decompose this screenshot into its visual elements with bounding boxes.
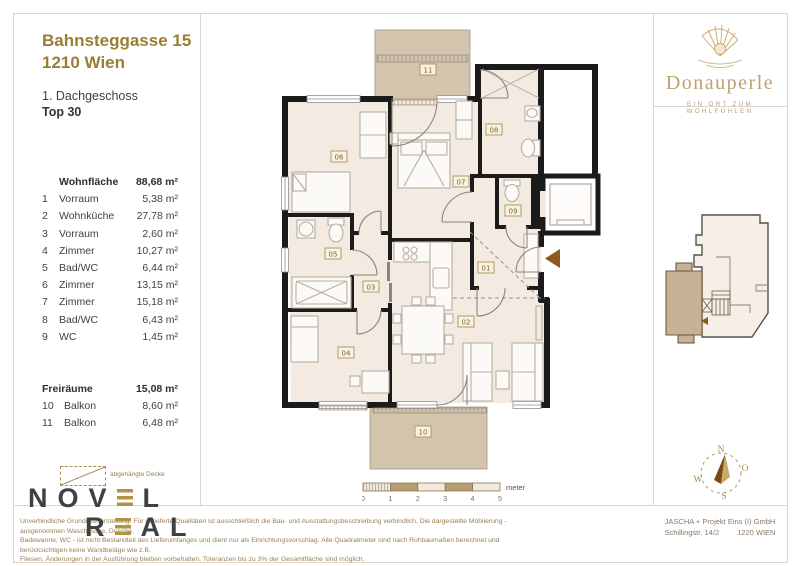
divider-left-column — [200, 13, 201, 505]
address-line2: 1210 Wien — [42, 52, 191, 74]
table-row: 9WC1,45 m² — [42, 331, 178, 348]
table-row: 10Balkon8,60 m² — [42, 400, 178, 417]
svg-text:3: 3 — [443, 496, 447, 503]
page-title: Bahnsteggasse 15 1210 Wien — [42, 30, 191, 74]
svg-text:5: 5 — [498, 496, 502, 503]
address-line1: Bahnsteggasse 15 — [42, 30, 191, 52]
open-area-table: Freiräume 15,08 m² 10Balkon8,60 m² 11Bal… — [42, 383, 178, 435]
table-row: 7Zimmer15,18 m² — [42, 296, 178, 313]
railing-balcony-11 — [377, 55, 468, 62]
entrance-arrow-icon — [545, 249, 560, 268]
svg-text:4: 4 — [471, 496, 475, 503]
unit-highlight — [666, 271, 702, 335]
scale-ticks: 0 1 2 3 4 5 — [362, 496, 502, 503]
company-address: Schillingstr. 14/21220 WIEN — [653, 527, 787, 538]
table-row: 1Vorraum5,38 m² — [42, 193, 178, 210]
room-label-07: 07 — [457, 179, 466, 187]
compass-e: O — [742, 464, 749, 474]
compass-rose: N O S W — [690, 440, 752, 502]
unit-tab-top — [676, 263, 692, 271]
elevator — [540, 176, 598, 233]
unit-label: Top 30 — [42, 105, 81, 119]
room-label-06: 06 — [335, 154, 344, 162]
room-label-08: 08 — [490, 127, 499, 135]
room-label-10: 10 — [419, 429, 428, 437]
floor-plan-sheet: { "header": { "address1": "Bahnsteggasse… — [0, 0, 800, 566]
pearl-shell-icon — [688, 18, 752, 70]
striped-e-glyph — [115, 518, 131, 538]
brand-block: Donauperle EIN ORT ZUM WOHLFÜHLEN — [653, 18, 787, 115]
table-header: Wohnfläche 88,68 m² — [42, 176, 178, 193]
logo-line-novel: NOVL — [28, 484, 197, 513]
svg-text:2: 2 — [416, 496, 420, 503]
room-label-11: 11 — [424, 67, 433, 75]
suspended-ceiling-label: abgehängte Decke — [110, 471, 165, 478]
scale-unit-label: meter — [506, 483, 526, 492]
room-label-03: 03 — [367, 284, 376, 292]
table-row: 5Bad/WC6,44 m² — [42, 262, 178, 279]
company-block: JASCHA + Projekt Eins (I) GmbH Schilling… — [653, 516, 787, 538]
balcony-10 — [370, 407, 487, 469]
floor-plan: 01 02 03 04 05 06 07 08 09 10 11 — [278, 24, 608, 476]
table-row: 8Bad/WC6,43 m² — [42, 314, 178, 331]
compass-n: N — [718, 445, 725, 455]
table-row: 3Vorraum2,60 m² — [42, 228, 178, 245]
logo-line-real: RAL — [85, 513, 197, 542]
novel-real-logo: NOVL RAL — [28, 484, 197, 542]
floor-label: 1. Dachgeschoss — [42, 88, 138, 105]
sliding-door — [387, 262, 390, 281]
table-row: 11Balkon6,48 m² — [42, 417, 178, 434]
room-label-02: 02 — [462, 319, 471, 327]
brand-name: Donauperle — [653, 72, 787, 95]
table-row: 4Zimmer10,27 m² — [42, 245, 178, 262]
table-row: 2Wohnküche27,78 m² — [42, 210, 178, 227]
room-label-01: 01 — [482, 265, 491, 273]
living-area-table: Wohnfläche 88,68 m² 1Vorraum5,38 m² 2Woh… — [42, 176, 178, 348]
brand-tagline: EIN ORT ZUM WOHLFÜHLEN — [653, 101, 787, 115]
compass-s: S — [721, 492, 726, 502]
compass-w: W — [694, 475, 703, 485]
svg-text:0: 0 — [362, 496, 365, 503]
striped-e-glyph — [117, 489, 133, 509]
table-row: 6Zimmer13,15 m² — [42, 279, 178, 296]
company-name: JASCHA + Projekt Eins (I) GmbH — [653, 516, 787, 527]
sliding-door — [389, 283, 392, 302]
svg-text:1: 1 — [388, 496, 392, 503]
room-label-04: 04 — [342, 350, 351, 358]
scale-bar: 0 1 2 3 4 5 meter — [362, 480, 537, 506]
room-label-05: 05 — [329, 251, 338, 259]
unit-tab-bottom — [678, 335, 694, 343]
table-header: Freiräume 15,08 m² — [42, 383, 178, 400]
room-label-09: 09 — [509, 208, 518, 216]
key-plan — [656, 207, 786, 357]
